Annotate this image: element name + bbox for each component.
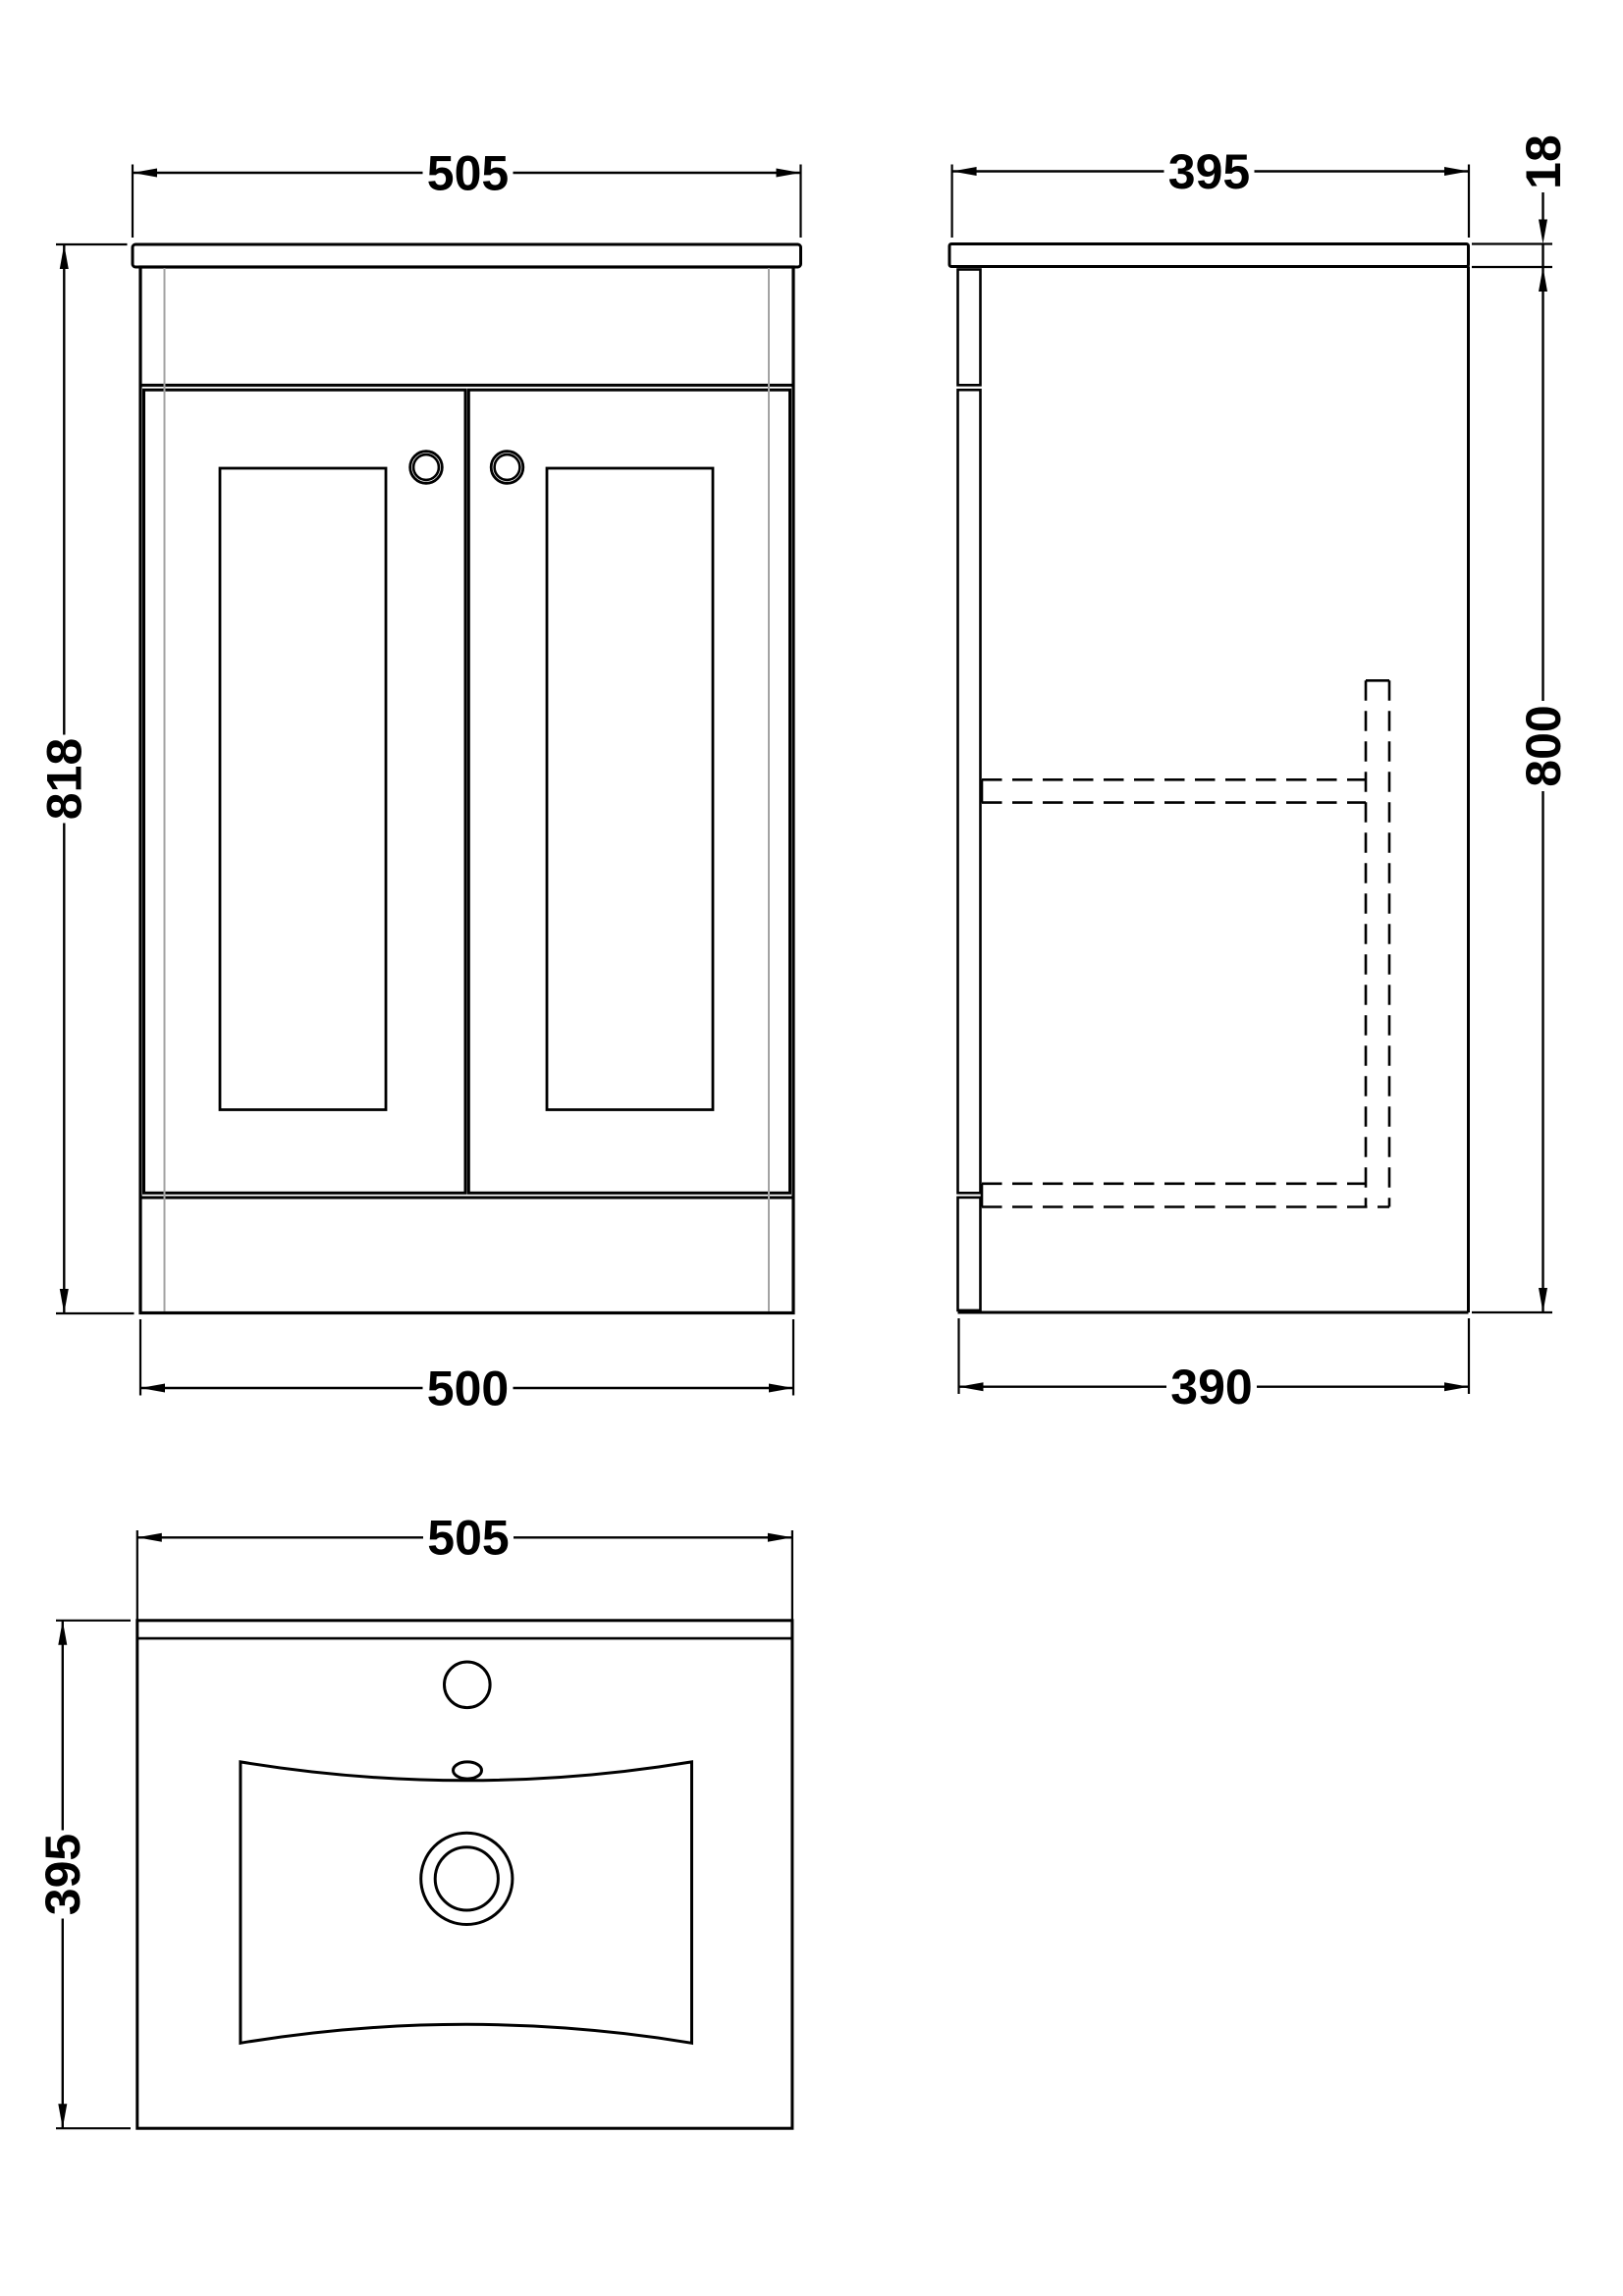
svg-text:395: 395: [1168, 144, 1250, 199]
svg-text:505: 505: [427, 145, 509, 200]
svg-text:500: 500: [427, 1361, 509, 1415]
svg-text:18: 18: [1516, 134, 1571, 189]
svg-text:800: 800: [1516, 705, 1571, 786]
svg-text:395: 395: [35, 1834, 90, 1915]
svg-text:505: 505: [427, 1511, 509, 1566]
svg-text:390: 390: [1170, 1360, 1252, 1415]
svg-text:818: 818: [37, 738, 92, 820]
